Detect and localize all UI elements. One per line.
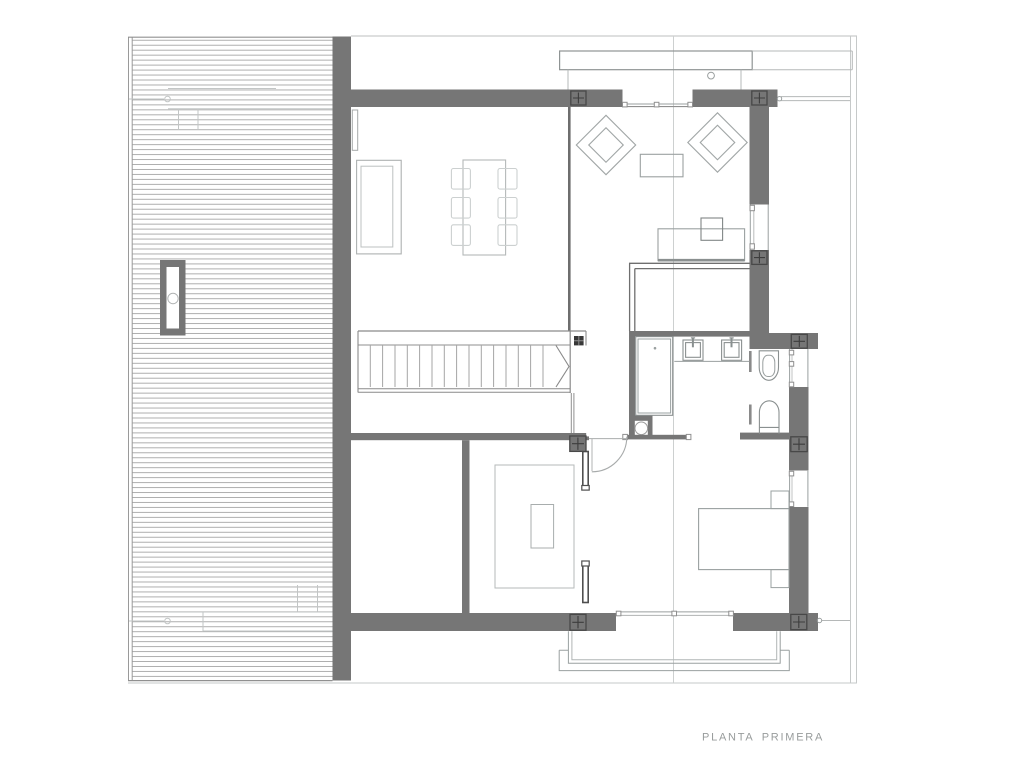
svg-text:PLANTA PRIMERA: PLANTA PRIMERA: [702, 732, 824, 744]
